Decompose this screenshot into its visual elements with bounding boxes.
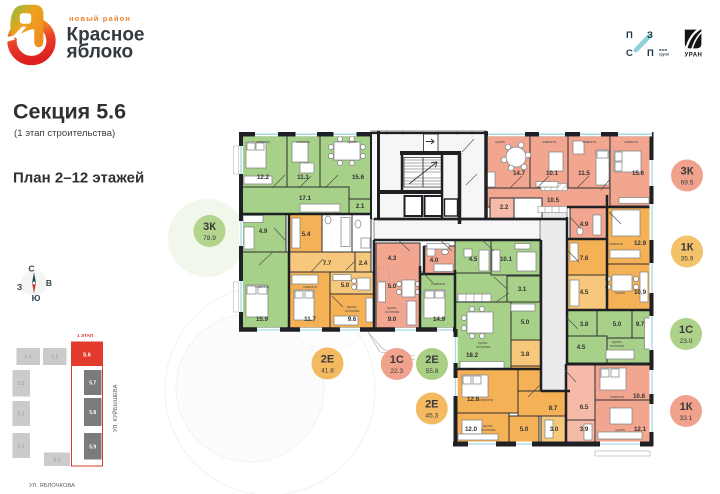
svg-text:45.3: 45.3 <box>425 413 438 420</box>
svg-text:С: С <box>626 48 633 59</box>
svg-text:комната: комната <box>542 140 556 144</box>
svg-text:4.5: 4.5 <box>580 289 589 296</box>
svg-text:гостиная: гостиная <box>345 309 360 313</box>
svg-text:УРАН: УРАН <box>685 53 703 59</box>
svg-text:З: З <box>17 282 22 292</box>
svg-text:4.0: 4.0 <box>430 257 439 264</box>
svg-text:5.6: 5.6 <box>83 353 91 359</box>
svg-text:С: С <box>28 264 34 274</box>
svg-text:10.5: 10.5 <box>547 197 560 204</box>
svg-text:22.3: 22.3 <box>390 368 403 375</box>
svg-text:гостиная: гостиная <box>476 345 491 349</box>
svg-text:3К: 3К <box>681 166 694 178</box>
svg-text:комната: комната <box>624 140 638 144</box>
svg-text:5.3: 5.3 <box>18 381 25 387</box>
svg-text:9.6: 9.6 <box>348 316 357 323</box>
svg-text:пзсп: пзсп <box>659 48 667 52</box>
svg-text:5.4: 5.4 <box>25 355 32 361</box>
svg-text:7.6: 7.6 <box>580 255 589 262</box>
svg-text:П: П <box>647 48 654 59</box>
svg-text:5.8: 5.8 <box>89 410 96 416</box>
svg-text:кухня: кухня <box>347 140 356 144</box>
svg-text:12.0: 12.0 <box>465 426 478 433</box>
svg-text:10.1: 10.1 <box>500 256 513 263</box>
svg-text:яблоко: яблоко <box>66 42 134 63</box>
svg-text:комната: комната <box>255 285 269 289</box>
svg-text:5.0: 5.0 <box>388 283 397 290</box>
svg-text:З: З <box>647 30 653 41</box>
svg-text:3.1: 3.1 <box>518 286 527 293</box>
svg-text:33.1: 33.1 <box>680 415 693 422</box>
svg-text:1С: 1С <box>390 354 404 366</box>
svg-text:3.0: 3.0 <box>550 426 559 433</box>
svg-text:4.5: 4.5 <box>577 344 586 351</box>
svg-text:УЛ. ЯБЛОЧКОВА: УЛ. ЯБЛОЧКОВА <box>29 483 75 489</box>
svg-text:кухня: кухня <box>495 140 504 144</box>
svg-text:гостиная: гостиная <box>610 344 625 348</box>
svg-text:15.6: 15.6 <box>632 170 645 177</box>
svg-text:15.6: 15.6 <box>352 174 365 181</box>
svg-text:Ю: Ю <box>32 293 41 303</box>
svg-text:11.7: 11.7 <box>304 316 316 323</box>
svg-text:2.1: 2.1 <box>356 203 365 210</box>
svg-text:10.1: 10.1 <box>546 170 559 177</box>
svg-text:12.9: 12.9 <box>634 240 647 247</box>
svg-text:69.5: 69.5 <box>681 180 694 187</box>
svg-text:гостиная: гостиная <box>481 428 496 432</box>
svg-text:11.5: 11.5 <box>578 170 590 177</box>
svg-text:7.7: 7.7 <box>323 260 332 267</box>
svg-text:11.1: 11.1 <box>297 174 309 181</box>
svg-text:5.5: 5.5 <box>52 355 59 361</box>
svg-text:5.2: 5.2 <box>18 412 25 418</box>
svg-text:УЛ. КУЙБЫШЕВА: УЛ. КУЙБЫШЕВА <box>111 384 119 432</box>
svg-text:кухня: кухня <box>615 291 624 295</box>
svg-text:2Е: 2Е <box>425 399 438 411</box>
svg-text:5.0: 5.0 <box>341 282 350 289</box>
svg-text:2Е: 2Е <box>321 354 334 366</box>
svg-text:15.9: 15.9 <box>256 316 269 323</box>
svg-text:2.4: 2.4 <box>359 260 368 267</box>
svg-text:3К: 3К <box>203 221 216 233</box>
svg-text:П: П <box>626 30 633 41</box>
svg-text:9.7: 9.7 <box>636 321 645 328</box>
svg-text:3.9: 3.9 <box>580 426 589 433</box>
svg-text:5.0: 5.0 <box>520 426 529 433</box>
svg-text:78.9: 78.9 <box>203 235 216 242</box>
svg-text:1С: 1С <box>679 324 693 336</box>
svg-text:5.1: 5.1 <box>18 444 25 450</box>
svg-text:23.0: 23.0 <box>680 338 693 345</box>
svg-text:18.2: 18.2 <box>466 352 479 359</box>
svg-text:5.0: 5.0 <box>613 321 622 328</box>
svg-text:35.9: 35.9 <box>681 256 694 263</box>
svg-text:12.1: 12.1 <box>634 426 647 433</box>
svg-text:4.3: 4.3 <box>388 255 397 262</box>
svg-text:План 2–12 этажей: План 2–12 этажей <box>13 170 144 187</box>
svg-text:групп: групп <box>659 53 669 57</box>
svg-text:5.4: 5.4 <box>302 231 311 238</box>
svg-text:Секция 5.6: Секция 5.6 <box>13 100 126 124</box>
svg-text:новый район: новый район <box>69 14 131 23</box>
svg-text:1К: 1К <box>680 401 693 413</box>
svg-text:комната: комната <box>610 395 624 399</box>
svg-text:комната: комната <box>582 140 596 144</box>
svg-text:5.7: 5.7 <box>89 381 96 387</box>
svg-text:гостиная: гостиная <box>385 310 400 314</box>
svg-text:4.5: 4.5 <box>469 256 478 263</box>
svg-text:6.5: 6.5 <box>580 404 589 411</box>
svg-text:3.8: 3.8 <box>521 351 530 358</box>
svg-text:кухня: кухня <box>615 428 624 432</box>
svg-text:10.6: 10.6 <box>633 393 646 400</box>
svg-text:5.9: 5.9 <box>89 445 96 451</box>
svg-text:(1 этап строительства): (1 этап строительства) <box>14 128 115 139</box>
svg-text:комната: комната <box>256 140 270 144</box>
svg-text:4.9: 4.9 <box>259 228 268 235</box>
svg-text:41.8: 41.8 <box>321 368 334 375</box>
svg-text:8.7: 8.7 <box>549 405 558 412</box>
svg-text:6.1: 6.1 <box>54 458 61 464</box>
svg-text:2.2: 2.2 <box>500 204 509 211</box>
svg-text:9.0: 9.0 <box>388 316 397 323</box>
svg-text:комната: комната <box>303 285 317 289</box>
svg-text:12.2: 12.2 <box>257 174 270 181</box>
svg-text:комната: комната <box>431 282 445 286</box>
svg-text:12.8: 12.8 <box>467 396 480 403</box>
svg-text:2Е: 2Е <box>425 354 438 366</box>
svg-text:5.0: 5.0 <box>521 319 530 326</box>
svg-text:14.9: 14.9 <box>433 316 446 323</box>
svg-text:55.8: 55.8 <box>426 368 439 375</box>
svg-text:14.7: 14.7 <box>513 170 526 177</box>
svg-text:комната: комната <box>479 398 493 402</box>
svg-text:1К: 1К <box>681 242 694 254</box>
svg-text:комната: комната <box>296 140 310 144</box>
svg-text:10.9: 10.9 <box>634 289 647 296</box>
svg-text:комната: комната <box>609 242 623 246</box>
svg-text:4.9: 4.9 <box>580 221 589 228</box>
svg-text:1 ЭТАП: 1 ЭТАП <box>77 333 93 338</box>
svg-text:3.8: 3.8 <box>580 321 589 328</box>
svg-text:17.1: 17.1 <box>299 195 312 202</box>
svg-text:В: В <box>46 278 52 288</box>
